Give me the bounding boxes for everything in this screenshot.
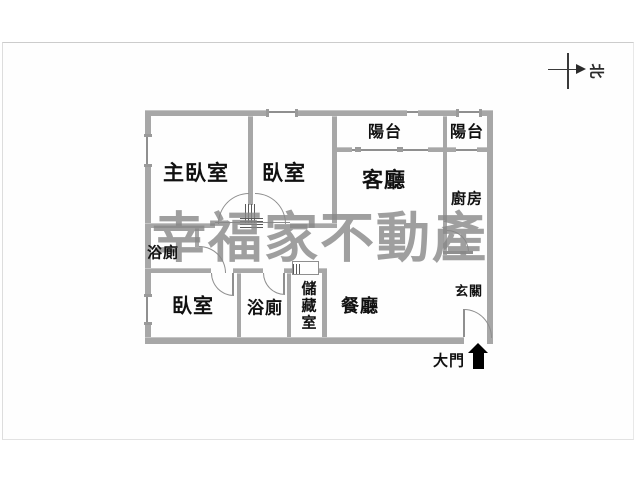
- north-crosshair-icon: [567, 53, 569, 89]
- window-cap: [295, 109, 298, 117]
- door-leaf: [232, 273, 234, 295]
- room-label-foyer: 玄關: [455, 281, 483, 300]
- room-label-bathroom1: 浴廁: [147, 242, 179, 263]
- window-cap: [144, 322, 152, 325]
- wall-segment: [337, 147, 352, 152]
- room-label-dining-room: 餐廳: [341, 292, 379, 318]
- room-label-master-bedroom: 主臥室: [163, 157, 229, 187]
- window: [352, 149, 428, 151]
- room-label-balcony2: 陽台: [450, 118, 484, 142]
- window-cap: [144, 164, 152, 167]
- window-cap: [355, 147, 361, 152]
- floorplan-image: 幸福家不動產 主臥室 臥室 客廳 陽台 陽台 廚房 浴廁 臥室 浴廁 儲藏室 餐…: [0, 0, 640, 480]
- north-arrow-icon: [548, 69, 578, 71]
- watermark: 幸福家不動產: [152, 194, 488, 273]
- window: [146, 135, 148, 166]
- room-label-bedroom3: 臥室: [172, 290, 214, 319]
- room-label-bathroom2: 浴廁: [247, 294, 283, 319]
- wall-segment: [428, 147, 443, 152]
- window: [407, 111, 418, 113]
- window: [146, 296, 148, 324]
- wall-segment: [145, 337, 464, 344]
- window-cap: [479, 109, 482, 117]
- wall-segment: [248, 116, 253, 205]
- wall-segment: [447, 147, 456, 152]
- wall-segment: [322, 268, 327, 337]
- window-cap: [456, 109, 459, 117]
- window-cap: [397, 147, 403, 152]
- room-label-storage: 儲藏室: [298, 281, 319, 332]
- window-cap: [144, 134, 152, 137]
- north-arrow-icon: [576, 64, 586, 74]
- room-label-bedroom2: 臥室: [262, 157, 306, 187]
- door-leaf: [283, 273, 285, 294]
- room-label-kitchen: 廚房: [451, 188, 483, 209]
- wall-segment: [418, 110, 457, 116]
- wall-segment: [287, 273, 291, 337]
- wall-segment: [237, 273, 241, 337]
- room-label-living-room: 客廳: [362, 164, 406, 194]
- wall-segment: [296, 110, 407, 116]
- window: [456, 149, 477, 151]
- room-label-balcony1: 陽台: [368, 118, 402, 142]
- window: [268, 111, 296, 113]
- window-cap: [266, 109, 269, 117]
- wall-segment: [477, 147, 487, 152]
- window: [457, 111, 481, 113]
- main-door-label: 大門: [433, 350, 465, 371]
- entrance-arrow-icon: [473, 352, 484, 369]
- wall-segment: [145, 166, 151, 296]
- north-label: 北: [587, 63, 608, 78]
- wall-segment: [145, 110, 151, 135]
- window-cap: [144, 294, 152, 297]
